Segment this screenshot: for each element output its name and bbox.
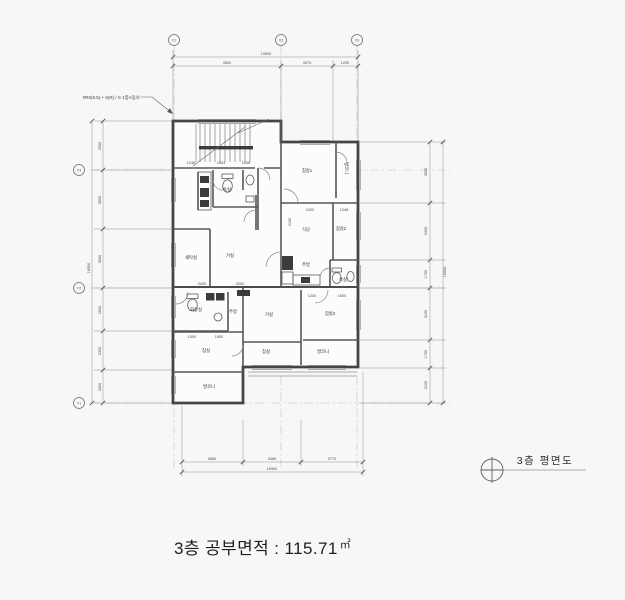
dim-label: 2100 <box>288 218 292 226</box>
dim-label: 1200 <box>341 61 349 65</box>
dim-label: 4500 <box>223 61 231 65</box>
room-label: 거실 <box>226 252 234 259</box>
dim-label: 1500 <box>188 335 196 339</box>
grid-axis-label: X3 <box>355 38 359 42</box>
room-label: 주방 <box>302 261 310 268</box>
area-caption-text: 3층 공부면적 : 115.71 <box>174 539 338 558</box>
area-caption: 3층 공부면적 : 115.71㎡ <box>174 534 351 559</box>
dim-label: 15600 <box>443 267 447 278</box>
floor-plan: X1X2X3Y3Y2Y1 <box>0 0 625 600</box>
grid-axis-label: X2 <box>279 38 283 42</box>
dim-label: 2100 <box>424 381 428 389</box>
dim-label: 2300 <box>98 347 102 355</box>
dim-label: 1700 <box>424 270 428 278</box>
dim-label: 3650 <box>208 457 216 461</box>
grid-axis-label: Y2 <box>77 286 81 290</box>
dim-label: 10900 <box>261 52 272 56</box>
dim-label: 16900 <box>87 263 91 274</box>
dim-label: 3650 <box>424 168 428 176</box>
grid-axis-label: Y3 <box>77 168 81 172</box>
room-label: 세탁실 <box>185 254 197 261</box>
dim-label: 2400 <box>198 282 206 286</box>
plan-title: 3층 평면도 <box>517 455 573 467</box>
room-label: 침실 <box>262 348 270 354</box>
room-label: 주방 <box>229 308 237 315</box>
dim-label: 3500 <box>98 255 102 263</box>
dim-label: 1803 <box>217 161 225 165</box>
dim-label: 3480 <box>268 457 276 461</box>
dim-label: 1200 <box>308 294 316 298</box>
dim-label: 2600 <box>98 306 102 314</box>
dim-label: 1800 <box>215 335 223 339</box>
dim-label: 2900 <box>98 142 102 150</box>
dim-label: 1248 <box>187 161 195 165</box>
dim-label: 3100 <box>424 310 428 318</box>
dim-label: 4070 <box>303 61 311 65</box>
dim-label: 1508 <box>242 161 250 165</box>
dim-label: 3400 <box>424 227 428 235</box>
room-label: 침실3 <box>325 310 336 316</box>
room-label: 침실2 <box>336 225 347 231</box>
grid-axis-label: X1 <box>172 38 176 42</box>
dim-label: 1248 <box>340 208 348 212</box>
dim-label: 3200 <box>236 282 244 286</box>
grid-axis-label: Y1 <box>77 401 81 405</box>
shoe-cabinet <box>237 290 250 296</box>
room-label: 침실 <box>202 347 210 353</box>
dim-label: 2400 <box>306 208 314 212</box>
room-label: 침실1 <box>302 167 313 173</box>
room-label: 욕실 <box>339 276 347 283</box>
dim-label: 3770 <box>328 457 336 461</box>
kitchen-sink <box>301 277 310 283</box>
drawing-sheet: X1X2X3Y3Y2Y1 <box>0 0 625 600</box>
room-label: 발코니 <box>317 348 329 355</box>
room-label: 거실 <box>265 311 273 318</box>
room-label: 발코니 <box>343 162 350 174</box>
dim-label: 3500 <box>98 196 102 204</box>
room-label: 발코니 <box>203 383 215 390</box>
dim-label: 10900 <box>267 467 278 471</box>
dim-label: 2000 <box>98 383 102 391</box>
room-label: 욕실 <box>223 186 231 193</box>
dim-label: 1500 <box>338 294 346 298</box>
plan-title-symbol: 3층 평면도 <box>481 455 586 483</box>
area-caption-unit: ㎡ <box>340 539 351 551</box>
room-label: 화장실 <box>190 306 202 313</box>
room-label: 식당 <box>302 226 310 233</box>
dim-label: 1700 <box>424 350 428 358</box>
stair-handrail <box>199 146 253 149</box>
note-text: #R6(8.5) + 6(R) / S 1종A동보 <box>83 95 140 100</box>
construction-note: #R6(8.5) + 6(R) / S 1종A동보 <box>83 95 173 114</box>
leader-arrow-icon <box>167 108 173 114</box>
